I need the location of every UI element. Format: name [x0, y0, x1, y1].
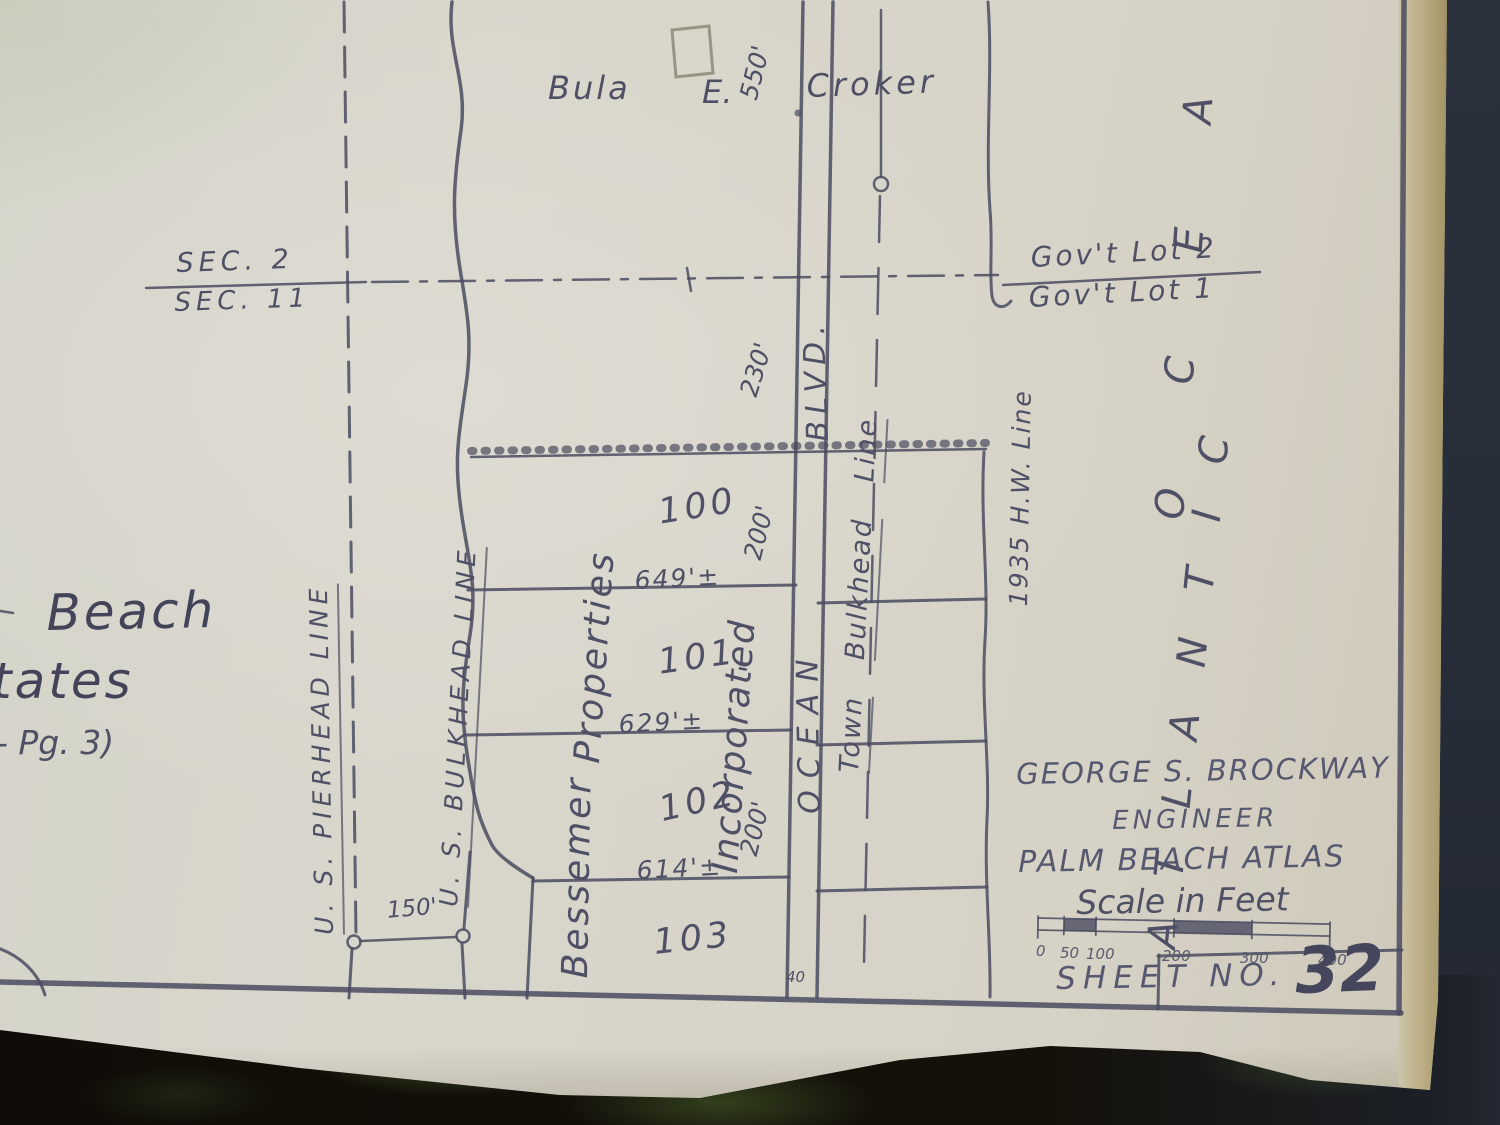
- edge-text-line2: tates: [0, 656, 134, 706]
- ocean-blvd-west-edge: [787, 2, 803, 997]
- scale-tick-0: 0: [1036, 944, 1046, 959]
- sheet-number: 32: [1294, 937, 1385, 1004]
- sheet-label: SHEET NO.: [1056, 960, 1287, 995]
- pierhead-line: [344, 2, 356, 935]
- dim-40-label: 40: [786, 970, 805, 985]
- building-outline: [672, 26, 713, 77]
- edge-cutoff-curve: [0, 948, 45, 995]
- owner-first-name: Bula: [548, 72, 631, 104]
- hw-line-label: 1935 H.W. Line: [1006, 389, 1035, 606]
- dim-649-label: 649'±: [634, 564, 721, 593]
- town-bulkhead-circle: [874, 177, 888, 191]
- owner-last-name: Croker: [806, 65, 937, 102]
- edge-cutoff-dash: [0, 611, 13, 613]
- company-name-bessemer: Bessemer: [558, 775, 598, 978]
- lot103-west-edge: [527, 878, 533, 998]
- pierhead-line-label: U. S. PIERHEAD LINE: [306, 583, 337, 935]
- hw-line-upper: [988, 2, 1011, 307]
- bulkhead-monument-circle: [457, 930, 470, 943]
- engineer-name: GEORGE S. BROCKWAY: [1016, 753, 1390, 789]
- scale-label: Scale in Feet: [1076, 882, 1289, 919]
- pierhead-monument-circle: [348, 936, 361, 949]
- section-upper-label: SEC. 2: [176, 246, 294, 277]
- town-bulkhead-word1: Town: [834, 695, 874, 774]
- pierhead-line-text: U. S. PIERHEAD LINE: [304, 583, 345, 935]
- owner-middle-initial: E.: [702, 76, 732, 108]
- town-bulkhead-word2: Bulkhead: [840, 517, 883, 661]
- edge-text-line1: Beach: [46, 585, 217, 638]
- ocean-blvd-street-type: BLVD.: [800, 318, 834, 442]
- small-dot: [795, 110, 802, 117]
- photo-of-map: SEC. 2 SEC. 11 Gov't Lot 2 Gov't Lot 1 B…: [0, 0, 1500, 1125]
- section-line-dashed: [372, 275, 998, 282]
- east-lot-line-3: [817, 887, 987, 891]
- ocean-blvd-street-name: OCEAN: [793, 647, 826, 814]
- lot-line-649: [468, 585, 796, 590]
- hw-line-lower: [983, 452, 990, 997]
- engineer-title: ENGINEER: [1112, 805, 1278, 834]
- atlas-title: PALM BEACH ATLAS: [1018, 842, 1346, 878]
- dim-150-label: 150': [386, 896, 438, 923]
- frame-right-line: [1399, 0, 1404, 1013]
- dim-629-label: 629'±: [618, 708, 705, 737]
- ocean-blvd-east-edge: [817, 2, 833, 997]
- dim-150-line: [360, 937, 456, 941]
- map-sheet-paper: SEC. 2 SEC. 11 Gov't Lot 2 Gov't Lot 1 B…: [0, 0, 1500, 1125]
- town-bulkhead-word3: Line: [849, 417, 888, 483]
- scale-tick-50: 50: [1060, 946, 1079, 961]
- section-lower-label: SEC. 11: [174, 285, 311, 316]
- edge-text-line3: - Pg. 3): [0, 726, 114, 759]
- lot-103-number: 103: [652, 918, 734, 961]
